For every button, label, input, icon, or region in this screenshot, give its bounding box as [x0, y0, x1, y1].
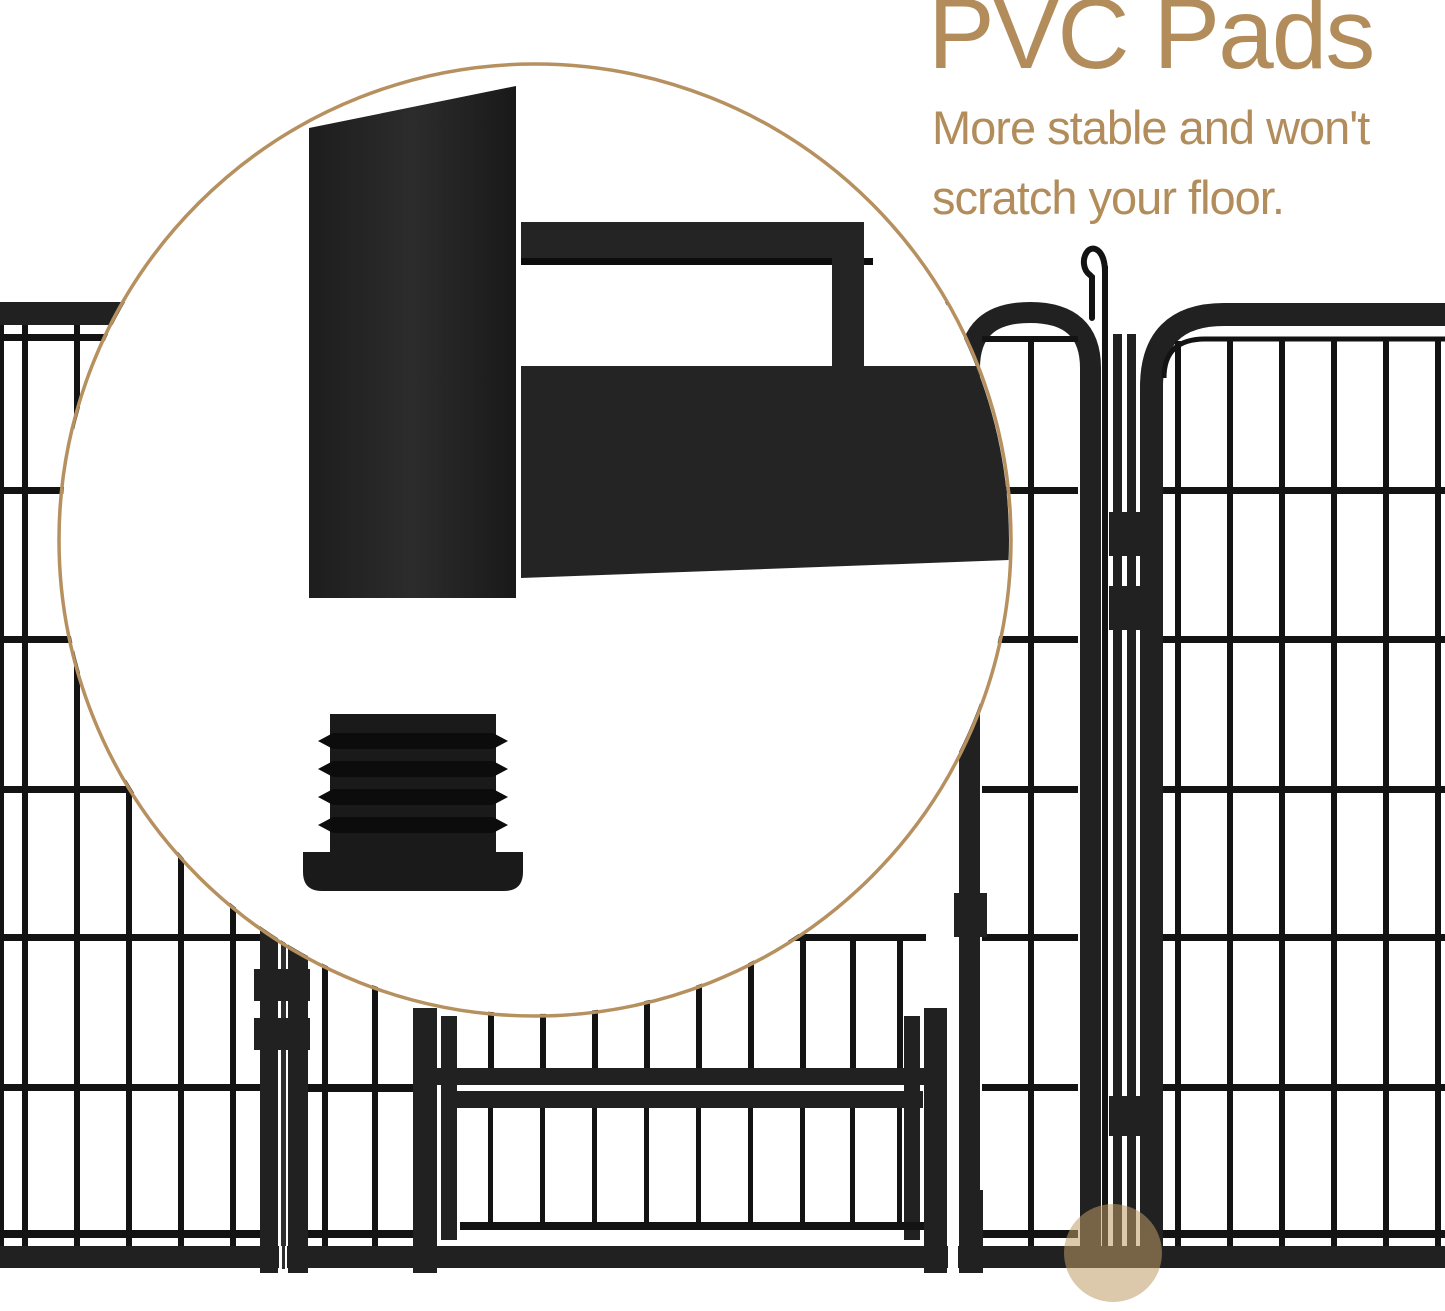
hinge-sleeve-right-upper: [1109, 512, 1141, 556]
hinge-sleeve-left-lower: [254, 1018, 310, 1050]
feature-subtitle-line1: More stable and won't: [932, 104, 1369, 151]
magnifier-circle: [59, 64, 1011, 1016]
bottom-rail: [0, 1245, 1445, 1269]
feature-title: PVC Pads: [928, 0, 1373, 84]
magnified-bottom-wire: [521, 222, 836, 260]
magnified-vertical-bar: [832, 222, 864, 368]
hinge-sleeve-right-mid: [1109, 586, 1141, 630]
pad-highlight-circle: [1064, 1204, 1162, 1302]
pvc-pad-base: [303, 852, 523, 891]
hinge-sleeve-right-lower: [1109, 1096, 1141, 1136]
door-hinge-sleeve: [954, 893, 987, 937]
walk-through-door: [437, 1016, 947, 1240]
product-detail-image: PVC Pads More stable and won't scratch y…: [0, 0, 1445, 1311]
magnified-frame-leg: [309, 86, 516, 598]
magnified-bottom-rail: [521, 366, 1010, 578]
pvc-pad-plug: [303, 714, 523, 891]
right-panel: [1152, 315, 1445, 1247]
hinge-sleeve-left-upper: [254, 969, 310, 1001]
feature-subtitle-line2: scratch your floor.: [932, 174, 1284, 221]
